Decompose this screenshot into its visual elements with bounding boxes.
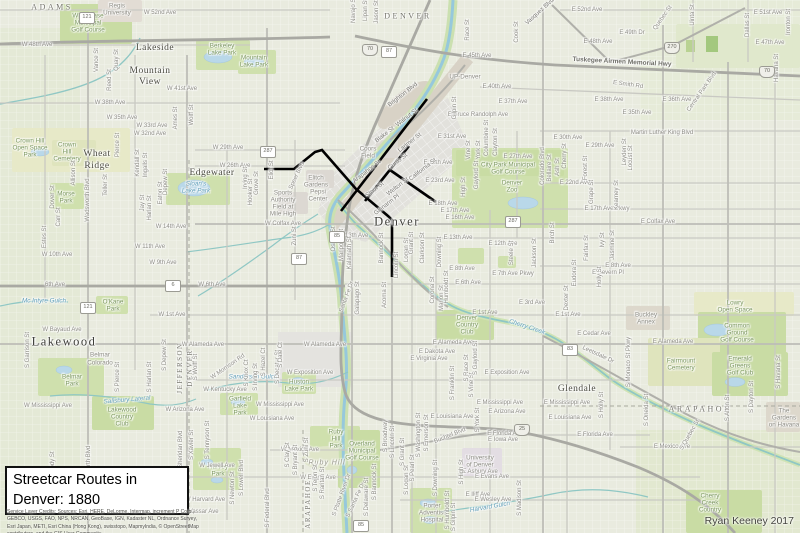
service-layer-credits: Service Layer Credits: Sources: Esri, HE… — [7, 509, 199, 533]
basemap-graphics — [0, 0, 800, 533]
map-title-line1: Streetcar Routes in — [13, 471, 181, 491]
map-title-line2: Denver: 1880 — [13, 491, 181, 511]
map-canvas[interactable]: ADAMSDENVERJEFFERSONDENVERARAPAHOEARAPAH… — [0, 0, 800, 533]
author-credit: Ryan Keeney 2017 — [705, 515, 794, 527]
map-title-box: Streetcar Routes in Denver: 1880 — [5, 466, 189, 515]
